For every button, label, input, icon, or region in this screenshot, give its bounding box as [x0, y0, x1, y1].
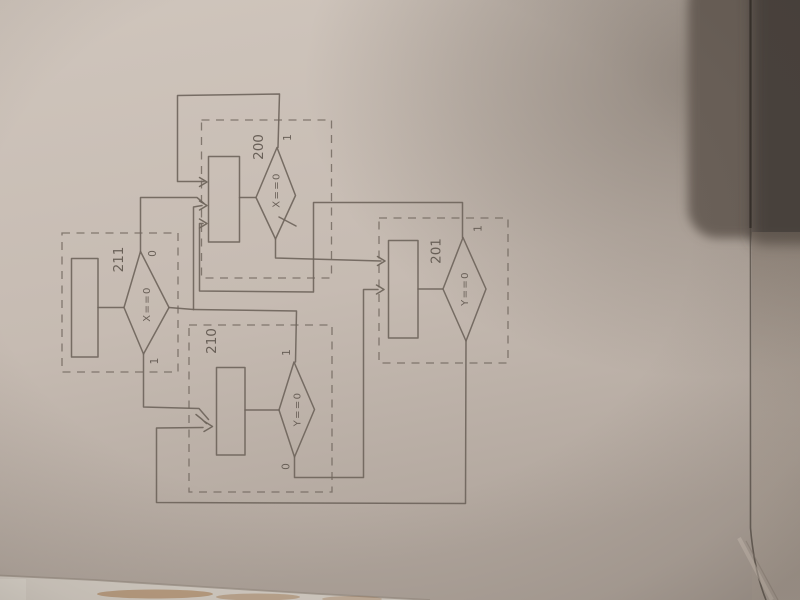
photo-of-hand-drawn-flowchart: 200 X==0 1 211 X==0 0 1 210 Y==0 1 0 201…	[0, 0, 800, 600]
photo-vignette	[0, 0, 800, 600]
